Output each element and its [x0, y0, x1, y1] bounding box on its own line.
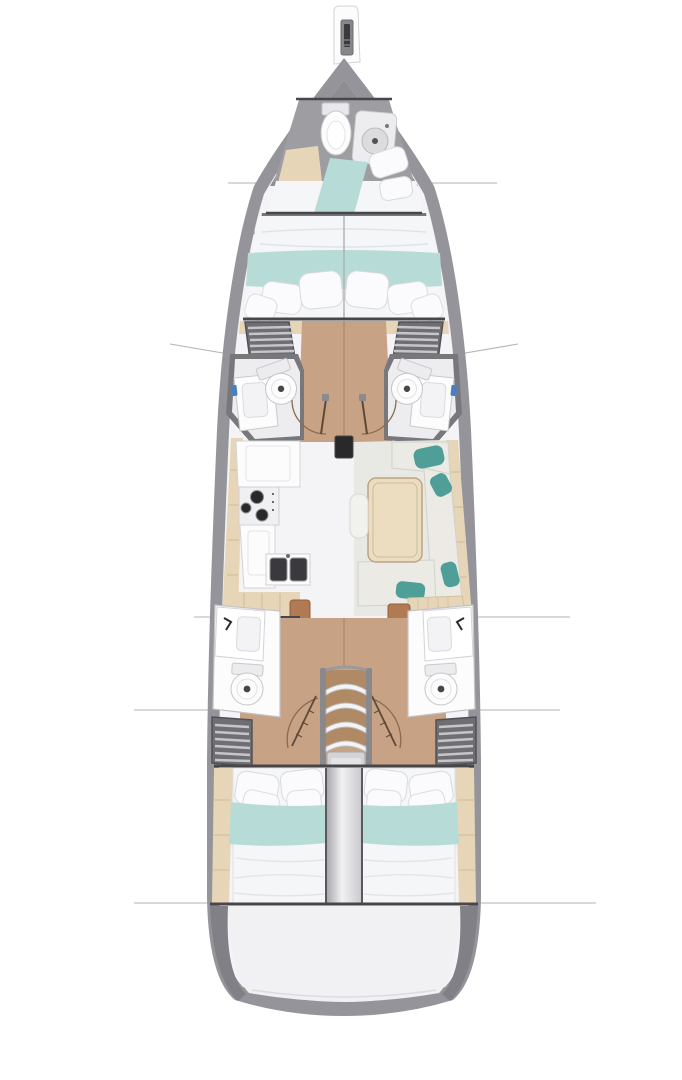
burner: [241, 503, 251, 513]
swim-deck: [228, 906, 460, 1002]
sink-basin: [290, 558, 307, 581]
aft-cabin-port-instance: [212, 768, 326, 903]
yacht-floorplan-diagram: [0, 0, 682, 1080]
stair-rail-starboard: [366, 668, 372, 774]
corridor-floor: [298, 321, 392, 442]
shower-head: [385, 124, 389, 128]
mast-step: [335, 436, 353, 458]
forepeak-head: [268, 99, 423, 214]
burner: [251, 491, 264, 504]
anchor-icon: [344, 24, 350, 47]
stair-rail-port: [320, 668, 326, 774]
pillow: [298, 270, 344, 310]
forepeak-toilet: [321, 103, 351, 155]
midship-section: [226, 321, 462, 458]
shower-drain: [372, 138, 378, 144]
aft-locker-starboard: [436, 717, 476, 766]
faucet: [286, 554, 290, 558]
salon-table: [368, 478, 422, 562]
bowsprit: [334, 6, 360, 64]
pouf-seat: [350, 494, 368, 538]
table-top: [368, 478, 422, 562]
toilet-seat-ring: [327, 121, 345, 149]
cabin-divider: [326, 768, 362, 903]
aft-cabins: [210, 768, 478, 904]
owner-cabin: [243, 213, 446, 325]
galley-sink: [266, 554, 310, 585]
aft-locker-port-instance: [212, 717, 252, 766]
pillow: [344, 270, 390, 310]
transom: [210, 906, 478, 1002]
burner: [256, 509, 268, 521]
stove: [239, 487, 279, 525]
aft-cabin-starboard: [362, 768, 476, 903]
sink-basin: [270, 558, 287, 581]
